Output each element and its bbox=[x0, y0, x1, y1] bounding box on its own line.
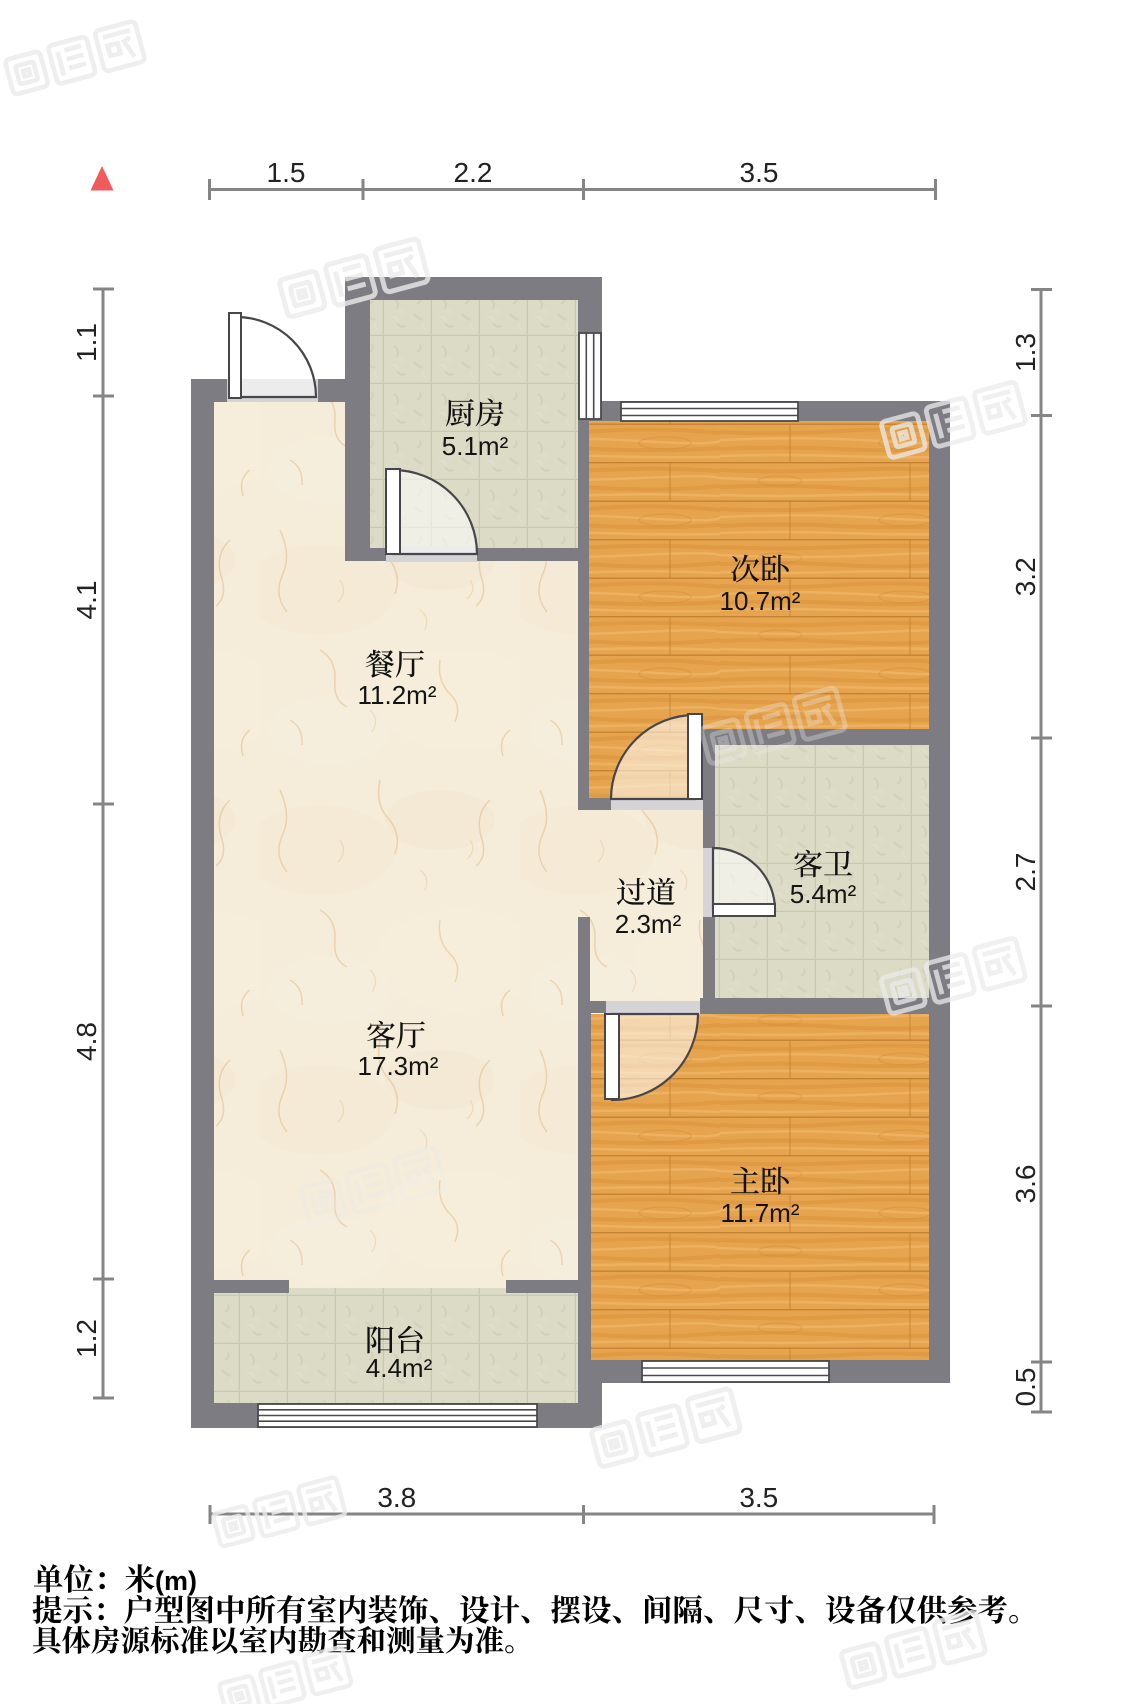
svg-text:1.5: 1.5 bbox=[267, 157, 306, 188]
svg-text:1.1: 1.1 bbox=[71, 323, 102, 362]
svg-text:3.8: 3.8 bbox=[377, 1482, 416, 1513]
svg-text:3.6: 3.6 bbox=[1010, 1165, 1041, 1204]
svg-text:5.1m²: 5.1m² bbox=[442, 431, 509, 461]
svg-text:4.8: 4.8 bbox=[71, 1022, 102, 1061]
svg-text:2.7: 2.7 bbox=[1010, 853, 1041, 892]
svg-text:3.2: 3.2 bbox=[1010, 557, 1041, 596]
svg-text:1.2: 1.2 bbox=[71, 1319, 102, 1358]
svg-text:3.5: 3.5 bbox=[739, 1482, 778, 1513]
svg-text:(m): (m) bbox=[155, 1566, 197, 1596]
svg-text:10.7m²: 10.7m² bbox=[720, 586, 801, 616]
svg-text:17.3m²: 17.3m² bbox=[358, 1051, 439, 1081]
svg-text:2.3m²: 2.3m² bbox=[615, 909, 682, 939]
svg-text:3.5: 3.5 bbox=[740, 157, 779, 188]
svg-text:2.2: 2.2 bbox=[454, 157, 493, 188]
svg-text:4.1: 4.1 bbox=[71, 581, 102, 620]
svg-text:4.4m²: 4.4m² bbox=[366, 1353, 433, 1383]
svg-text:11.7m²: 11.7m² bbox=[721, 1198, 800, 1228]
svg-text:1.3: 1.3 bbox=[1010, 333, 1041, 372]
svg-text:11.2m²: 11.2m² bbox=[358, 680, 437, 710]
svg-text:5.4m²: 5.4m² bbox=[790, 879, 857, 909]
svg-text:0.5: 0.5 bbox=[1010, 1368, 1041, 1407]
